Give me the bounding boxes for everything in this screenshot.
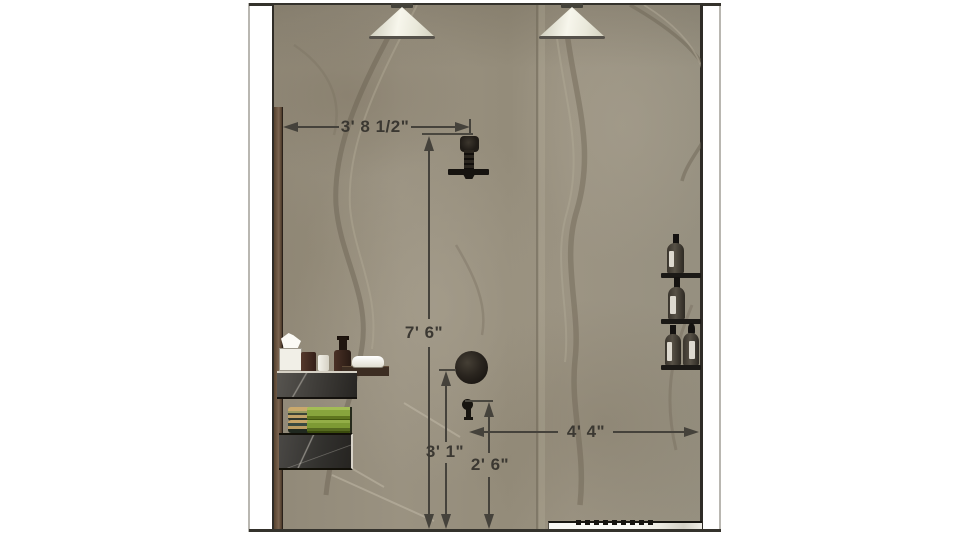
wall-shelf: [661, 319, 701, 324]
dim-arrow-down: [424, 514, 434, 529]
drain-slots: [576, 520, 657, 525]
dim-line: [484, 431, 558, 433]
wall-shelf: [661, 365, 701, 370]
dim-line: [428, 151, 430, 319]
dim-line: [428, 347, 430, 515]
page-border-left: [248, 3, 250, 532]
dim-arrow-right: [684, 427, 699, 437]
dim-label-valve-height: 3' 1": [426, 442, 464, 462]
pump-bottle-pump: [339, 337, 347, 351]
soap-dish: [352, 356, 384, 367]
dim-arrow-up: [484, 402, 494, 417]
towel: [307, 407, 351, 421]
dim-line: [445, 463, 447, 515]
mixer-valve-dial: [455, 351, 488, 384]
bottle-label: [669, 251, 674, 267]
dim-arrow-left: [469, 427, 484, 437]
bottle-label: [689, 341, 695, 359]
page-border-right: [719, 3, 721, 532]
dim-label-head-height: 7' 6": [405, 323, 443, 343]
dim-arrow-right: [455, 122, 470, 132]
towel-shelf-edge: [350, 407, 352, 433]
dim-line: [488, 417, 490, 453]
dim-line: [298, 126, 339, 128]
shower-handle-base: [464, 417, 473, 420]
towel-folded-edge: [288, 407, 309, 421]
towel: [307, 420, 351, 433]
dim-line: [613, 431, 684, 433]
floor-line: [249, 529, 721, 532]
dim-line: [445, 386, 447, 442]
cup: [318, 355, 329, 371]
towel-folded-edge: [288, 420, 309, 433]
pendant-light-underside: [539, 36, 605, 39]
bottle-label: [667, 342, 672, 361]
dim-arrow-down: [484, 514, 494, 529]
dim-line: [488, 477, 490, 515]
pendant-light-underside: [369, 36, 435, 39]
canister: [301, 352, 316, 371]
marble-counter: [277, 371, 357, 399]
marble-cabinet: [279, 433, 353, 470]
dim-arrow-up: [424, 136, 434, 151]
dim-line: [411, 126, 456, 128]
elevation-drawing: 3' 8 1/2" 7' 6" 3' 1" 2' 6" 4' 4": [0, 0, 960, 540]
wall-shelf: [661, 273, 701, 278]
dim-label-handle-height: 2' 6": [471, 455, 509, 475]
tile-seam-highlight: [539, 5, 545, 530]
dim-arrow-left: [283, 122, 298, 132]
shower-head-stem: [464, 150, 474, 170]
dim-arrow-down: [441, 514, 451, 529]
bottle-label: [670, 296, 676, 314]
dim-label-head-offset: 3' 8 1/2": [341, 117, 410, 137]
tile-seam: [536, 5, 538, 530]
extension-line: [422, 133, 473, 135]
dim-label-handle-to-wall: 4' 4": [567, 422, 605, 442]
tissue-box: [279, 348, 302, 371]
dim-arrow-up: [441, 371, 451, 386]
